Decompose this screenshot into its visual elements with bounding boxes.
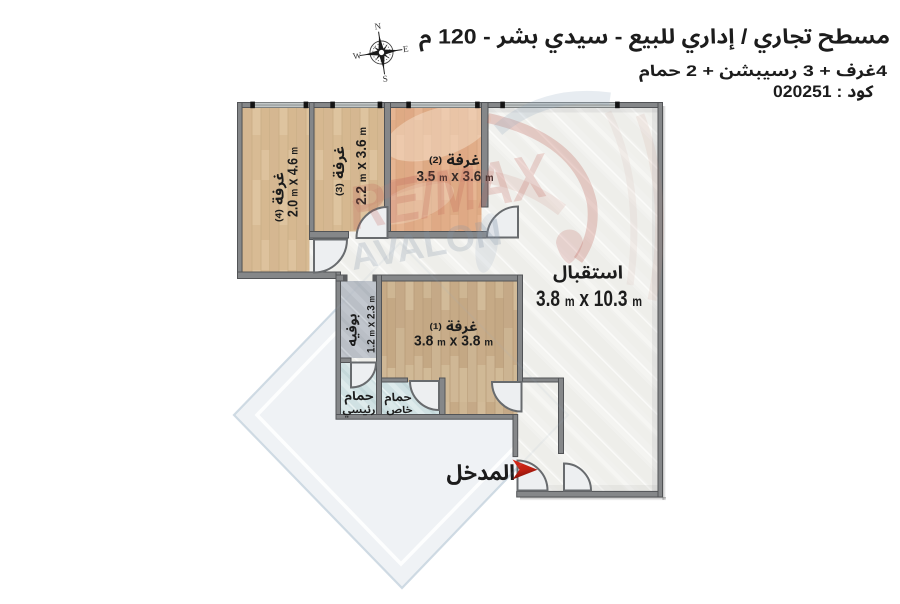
svg-text:2.0 m x 4.6 m: 2.0 m x 4.6 m	[285, 147, 302, 217]
svg-text:3.8 m x 3.8 m: 3.8 m x 3.8 m	[414, 333, 493, 350]
svg-text:3.8 m x 10.3 m: 3.8 m x 10.3 m	[536, 286, 642, 311]
svg-text:1.2 m x 2.3 m: 1.2 m x 2.3 m	[366, 296, 378, 353]
